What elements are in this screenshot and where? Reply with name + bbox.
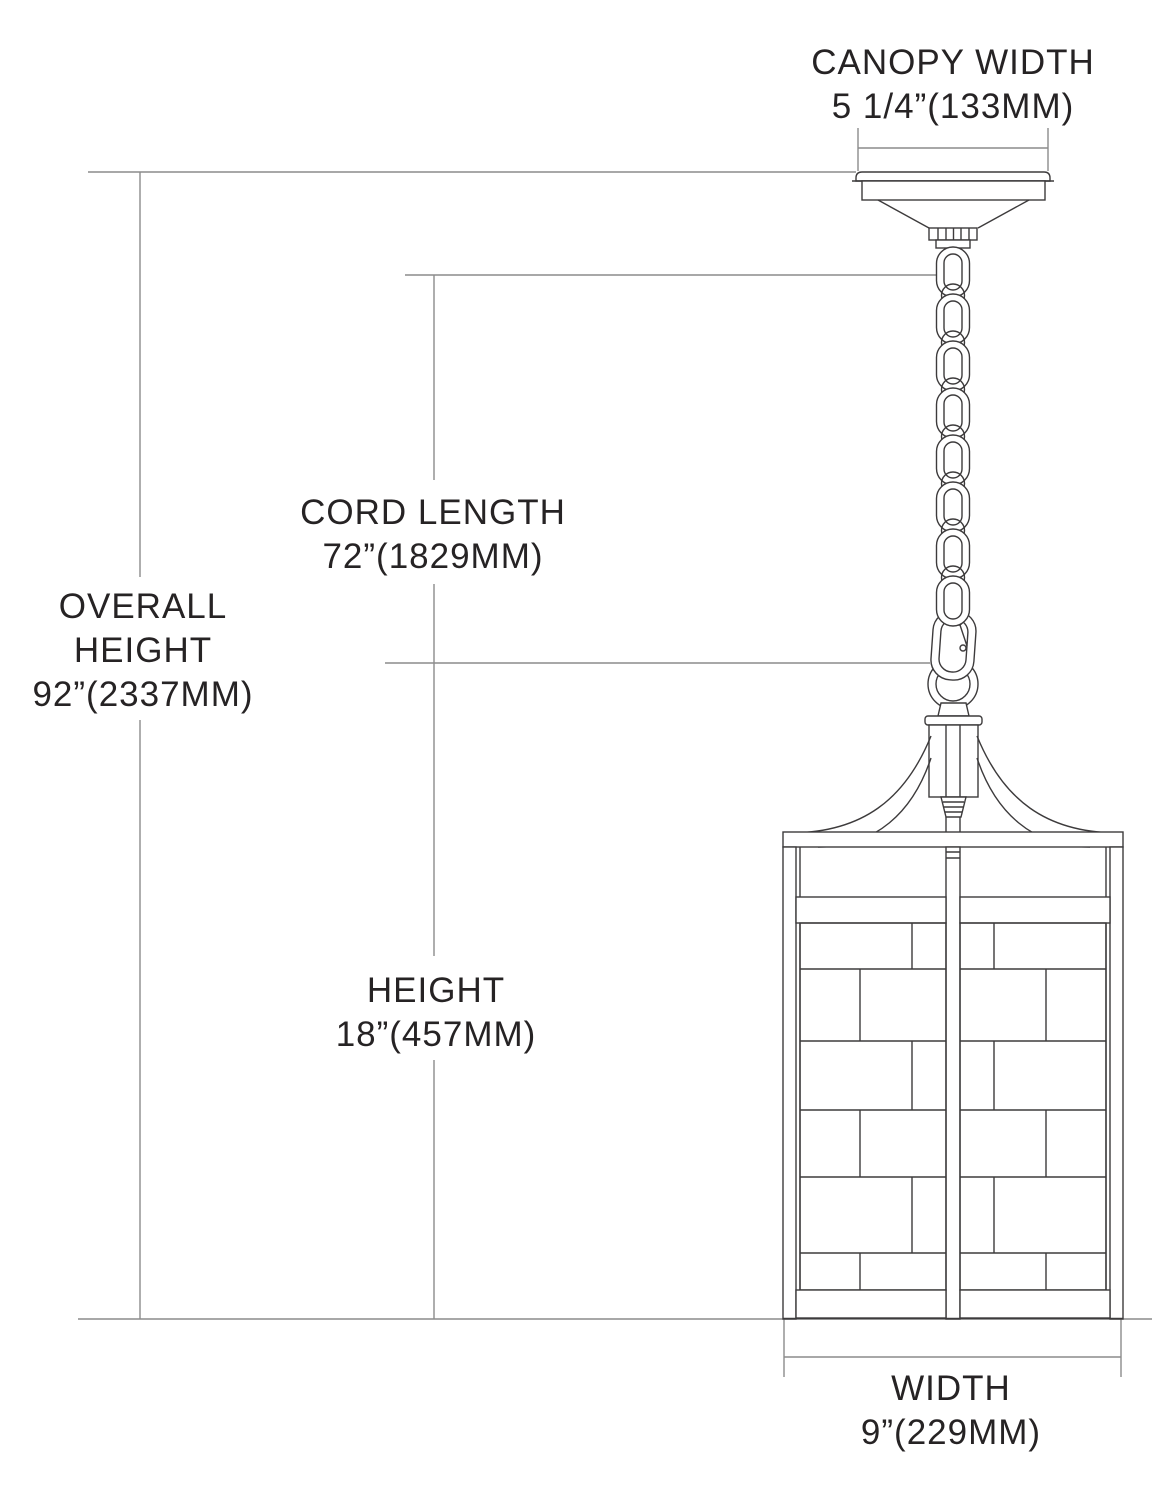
canopy-width-value: 5 1/4”(133MM): [832, 87, 1075, 126]
dimension-lines: [78, 128, 1152, 1377]
bottom-rail-right: [960, 1290, 1110, 1318]
canopy-drawing: [852, 172, 1054, 248]
lantern-right-rail: [1110, 847, 1123, 1319]
upper-rail-right: [960, 897, 1110, 923]
lantern-center-mullion: [946, 847, 960, 1319]
finial-and-yoke-drawing: [792, 703, 1116, 847]
brick-joints-right: [994, 923, 1046, 1290]
pendant-fixture-drawing: [783, 172, 1123, 1319]
overall-height-value: 92”(2337MM): [32, 675, 253, 714]
lantern-left-rail: [783, 847, 796, 1319]
spec-sheet-page: CANOPY WIDTH 5 1/4”(133MM) CORD LENGTH 7…: [0, 0, 1154, 1500]
overall-height-label-line1: OVERALL: [59, 587, 227, 626]
height-value: 18”(457MM): [336, 1015, 537, 1054]
width-label: WIDTH: [891, 1369, 1011, 1408]
brick-joints-left: [860, 923, 912, 1290]
bottom-rail-left: [796, 1290, 946, 1318]
canopy-width-extension-lines: [858, 128, 1048, 171]
yoke-arm-right: [977, 736, 1116, 833]
canopy-width-label: CANOPY WIDTH: [811, 43, 1095, 82]
yoke-arm-left: [792, 736, 931, 833]
width-value: 9”(229MM): [861, 1413, 1041, 1452]
lantern-top-band: [783, 832, 1123, 847]
lantern-body-drawing: [783, 832, 1123, 1319]
upper-rail-left: [796, 897, 946, 923]
pendant-light-dimension-diagram: CANOPY WIDTH 5 1/4”(133MM) CORD LENGTH 7…: [0, 0, 1154, 1500]
glass-panel-right: [960, 923, 1106, 1290]
cord-length-value: 72”(1829MM): [322, 537, 543, 576]
height-label: HEIGHT: [367, 971, 505, 1010]
overall-height-label-line2: HEIGHT: [74, 631, 212, 670]
glass-panel-left: [800, 923, 946, 1290]
chain-drawing: [937, 247, 970, 626]
cord-length-label: CORD LENGTH: [300, 493, 566, 532]
